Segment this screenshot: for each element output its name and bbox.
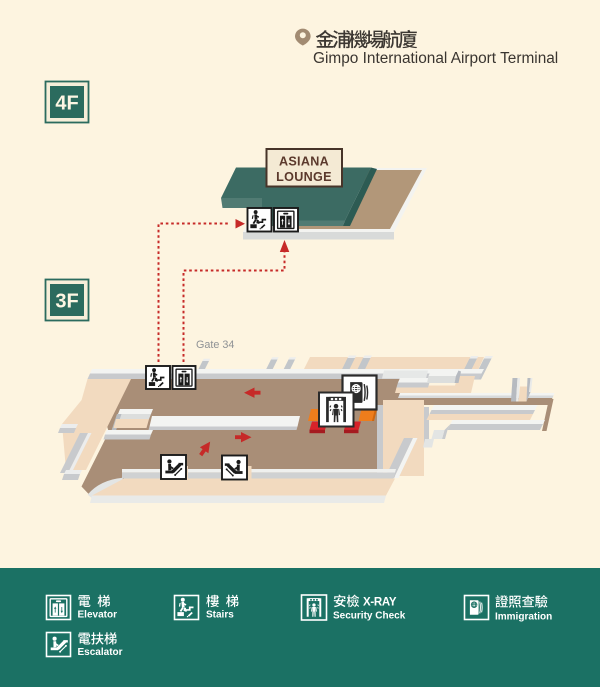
svg-text:Stairs: Stairs	[206, 610, 234, 621]
svg-text:Gate 34: Gate 34	[196, 339, 234, 351]
svg-text:Immigration: Immigration	[495, 612, 552, 623]
svg-text:LOUNGE: LOUNGE	[276, 170, 332, 184]
svg-text:Escalator: Escalator	[78, 647, 123, 658]
svg-text:Gimpo International Airport Te: Gimpo International Airport Terminal	[313, 50, 558, 67]
svg-text:ASIANA: ASIANA	[279, 155, 329, 169]
svg-text:X-RAY: X-RAY	[363, 597, 397, 609]
svg-text:3F: 3F	[55, 291, 78, 313]
svg-text:4F: 4F	[55, 93, 78, 115]
svg-text:Security Check: Security Check	[333, 611, 406, 622]
svg-text:Elevator: Elevator	[78, 610, 118, 621]
